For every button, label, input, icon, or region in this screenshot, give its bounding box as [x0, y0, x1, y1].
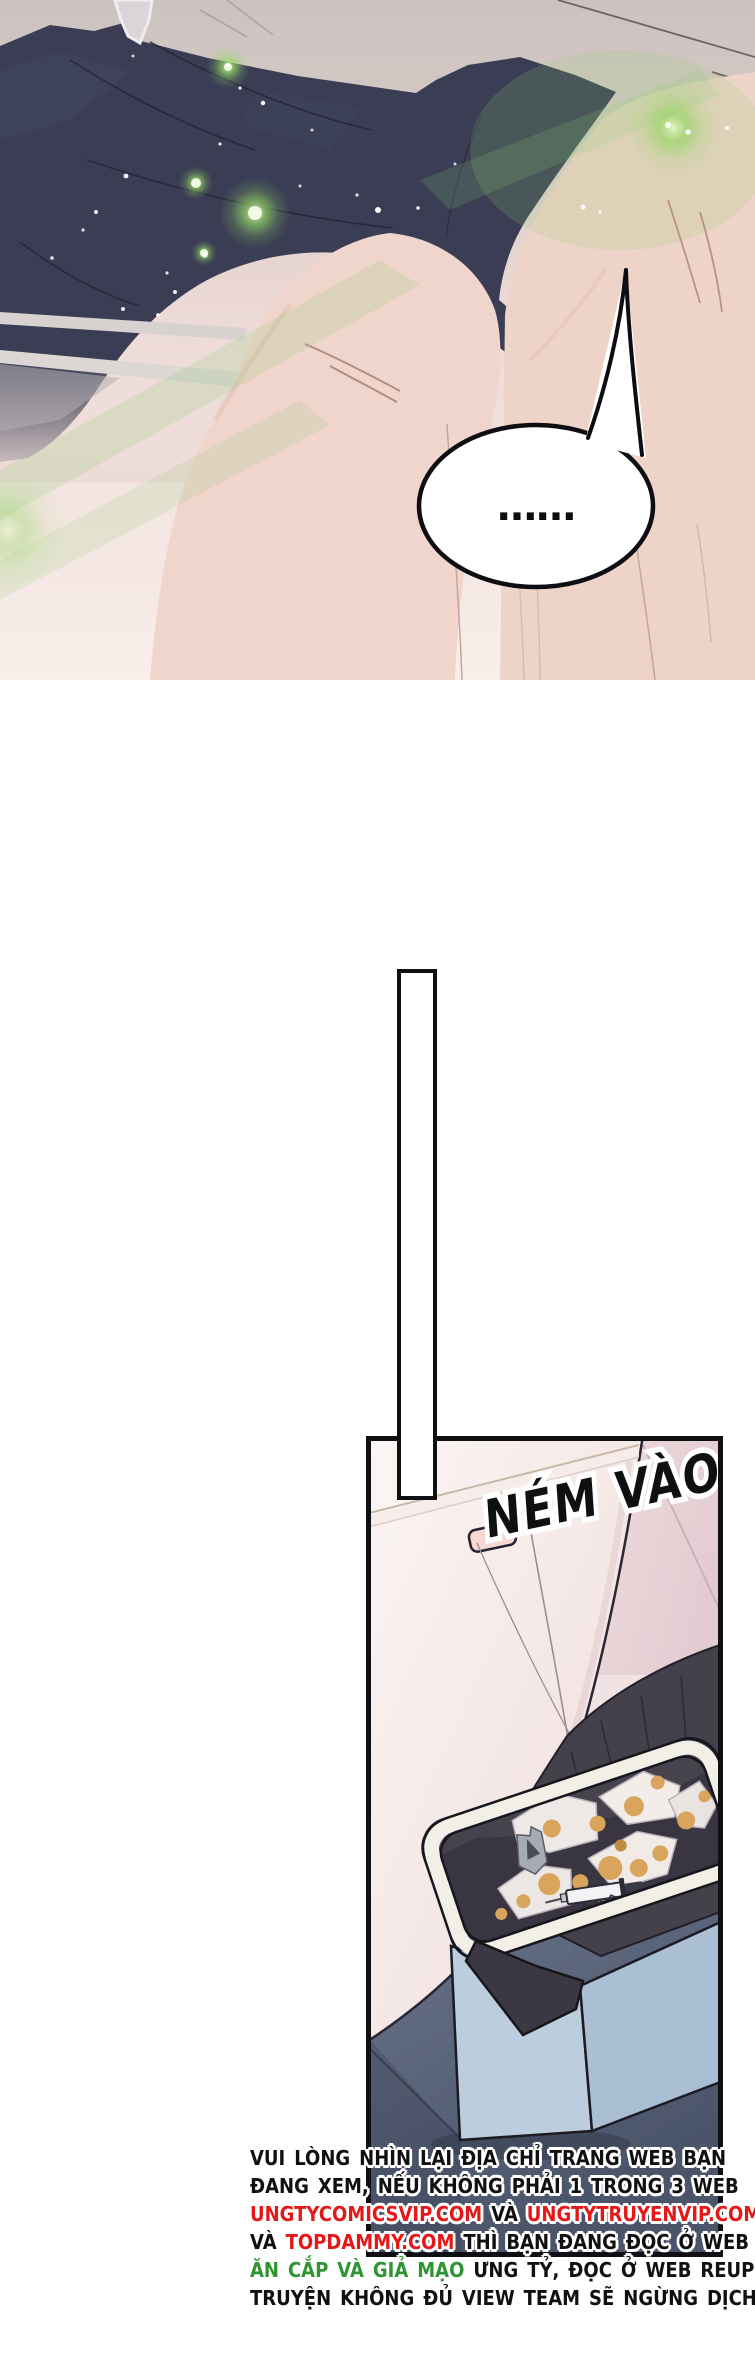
warning-site-link: UNGTYCOMICSVIP.COM: [250, 2202, 482, 2226]
warning-site-link: TOPDAMMY.COM: [286, 2230, 455, 2254]
warning-segment: VÀ: [250, 2230, 286, 2254]
warning-line: ĂN CẮP VÀ GIẢ MẠO ƯNG TỶ, ĐỌC Ở WEB REUP: [250, 2256, 755, 2284]
warning-segment: THÌ BẠN ĐANG ĐỌC Ở WEB: [454, 2230, 749, 2254]
falling-stick-object: [397, 969, 437, 1500]
trash-panel: NÉM VÀO NÉM VÀO: [366, 1436, 723, 2257]
warning-segment: ƯNG TỶ, ĐỌC Ở WEB REUP: [464, 2258, 754, 2282]
warning-segment-green: ĂN CẮP VÀ GIẢ MẠO: [250, 2258, 464, 2282]
warning-segment: VÀ: [482, 2202, 527, 2226]
warning-segment: TRUYỆN KHÔNG ĐỦ VIEW TEAM SẼ NGỪNG DỊCH.: [250, 2286, 755, 2310]
trash-panel-art: [371, 1441, 718, 2252]
warning-line: ĐANG XEM, NẾU KHÔNG PHẢI 1 TRONG 3 WEB: [250, 2172, 755, 2200]
top-panel-art: ……: [0, 0, 755, 680]
warning-segment: ĐANG XEM, NẾU KHÔNG PHẢI 1 TRONG 3 WEB: [250, 2174, 739, 2198]
warning-segment: VUI LÒNG NHÌN LẠI ĐỊA CHỈ TRANG WEB BẠN: [250, 2146, 726, 2170]
warning-line: VUI LÒNG NHÌN LẠI ĐỊA CHỈ TRANG WEB BẠN: [250, 2144, 755, 2172]
warning-line: VÀ TOPDAMMY.COM THÌ BẠN ĐANG ĐỌC Ở WEB: [250, 2228, 755, 2256]
warning-line: UNGTYCOMICSVIP.COM VÀ UNGTYTRUYENVIP.COM: [250, 2200, 755, 2228]
warning-line: TRUYỆN KHÔNG ĐỦ VIEW TEAM SẼ NGỪNG DỊCH.: [250, 2284, 755, 2312]
warning-site-link: UNGTYTRUYENVIP.COM: [527, 2202, 755, 2226]
warning-text-block: VUI LÒNG NHÌN LẠI ĐỊA CHỈ TRANG WEB BẠN …: [250, 2144, 755, 2312]
speech-bubble-text: ……: [497, 484, 575, 530]
comic-page: ……: [0, 0, 755, 2369]
